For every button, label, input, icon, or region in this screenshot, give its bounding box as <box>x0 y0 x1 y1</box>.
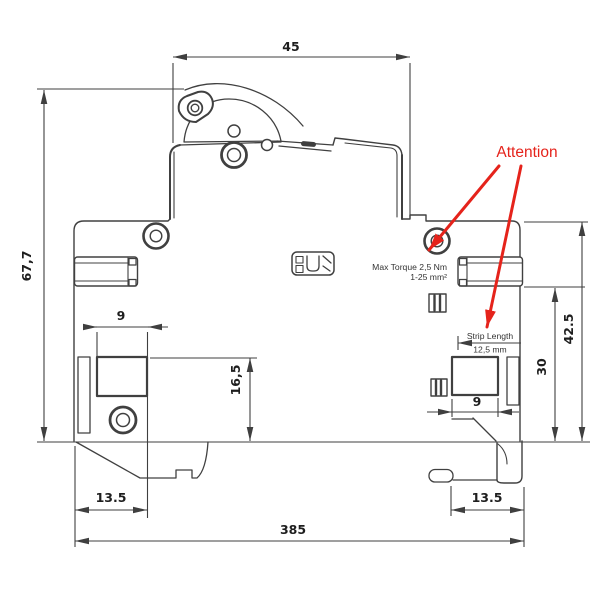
busbar-slot-lower-icon <box>431 379 447 396</box>
breaker-body-outline <box>74 84 523 483</box>
left-terminal-screw-icon <box>144 224 169 249</box>
dimensions: 45 67,7 9 16,5 13.5 <box>19 39 590 547</box>
right-side-slot <box>507 357 519 405</box>
dim-overall-depth-label: 385 <box>280 522 306 537</box>
dim-overall-depth: 385 <box>75 487 524 547</box>
din-clip-right <box>429 418 522 483</box>
attention-arrow-strip <box>487 166 521 327</box>
left-cable-opening <box>97 357 147 396</box>
dim-left-foot-label: 13.5 <box>96 490 127 505</box>
dim-right-foot-label: 13.5 <box>472 490 503 505</box>
certification-mark-icon <box>292 252 334 275</box>
top-surface-right <box>333 138 402 155</box>
bottom-screw-icon <box>110 407 136 433</box>
upper-left-wall <box>170 145 180 219</box>
mcb-dimension-drawing: 45 67,7 9 16,5 13.5 <box>0 0 600 600</box>
right-terminal-block <box>458 257 523 286</box>
mechanism-pin-right <box>262 140 273 151</box>
upper-right-wall-inner <box>345 143 397 217</box>
dim-right-foot: 13.5 <box>451 486 524 516</box>
dim-overall-height-label: 67,7 <box>19 251 34 282</box>
strip-length-value: 12,5 mm <box>473 345 506 355</box>
attention-arrow-torque <box>429 166 499 250</box>
left-terminal-block <box>75 257 138 286</box>
right-cable-opening <box>452 357 498 395</box>
busbar-slot-upper-icon <box>429 294 446 312</box>
din-clip-left <box>76 442 208 478</box>
din-clip-slider-tab <box>429 470 453 483</box>
dim-right-opening-width-label: 9 <box>473 394 482 409</box>
lever-pivot-outer <box>188 101 203 116</box>
dim-top-width-label: 45 <box>282 39 299 54</box>
dim-left-opening-width-label: 9 <box>117 308 126 323</box>
vent-slot <box>301 141 316 147</box>
wire-range-label: 1-25 mm² <box>410 272 447 282</box>
max-torque-note: Max Torque 2,5 Nm 1-25 mm² <box>372 262 447 282</box>
mechanism-axle-outer <box>222 143 247 168</box>
dim-right-height-upper-label: 42.5 <box>561 314 576 345</box>
dim-left-opening-height-label: 16,5 <box>228 365 243 396</box>
top-channel-lower <box>279 146 331 151</box>
attention-label: Attention <box>496 144 557 161</box>
max-torque-label: Max Torque 2,5 Nm <box>372 262 447 272</box>
dim-right-opening-width: 9 <box>427 394 519 417</box>
dim-right-height-lower: 30 <box>524 287 585 441</box>
strip-length-label: Strip Length <box>467 331 514 341</box>
dim-right-height-upper: 42.5 <box>524 222 588 441</box>
dim-left-opening-height: 16,5 <box>150 358 257 441</box>
mechanism-pin-top <box>228 125 240 137</box>
strip-length-callout: Strip Length 12,5 mm <box>458 331 521 355</box>
left-side-slot <box>78 357 90 433</box>
dim-right-height-lower-label: 30 <box>534 358 549 376</box>
